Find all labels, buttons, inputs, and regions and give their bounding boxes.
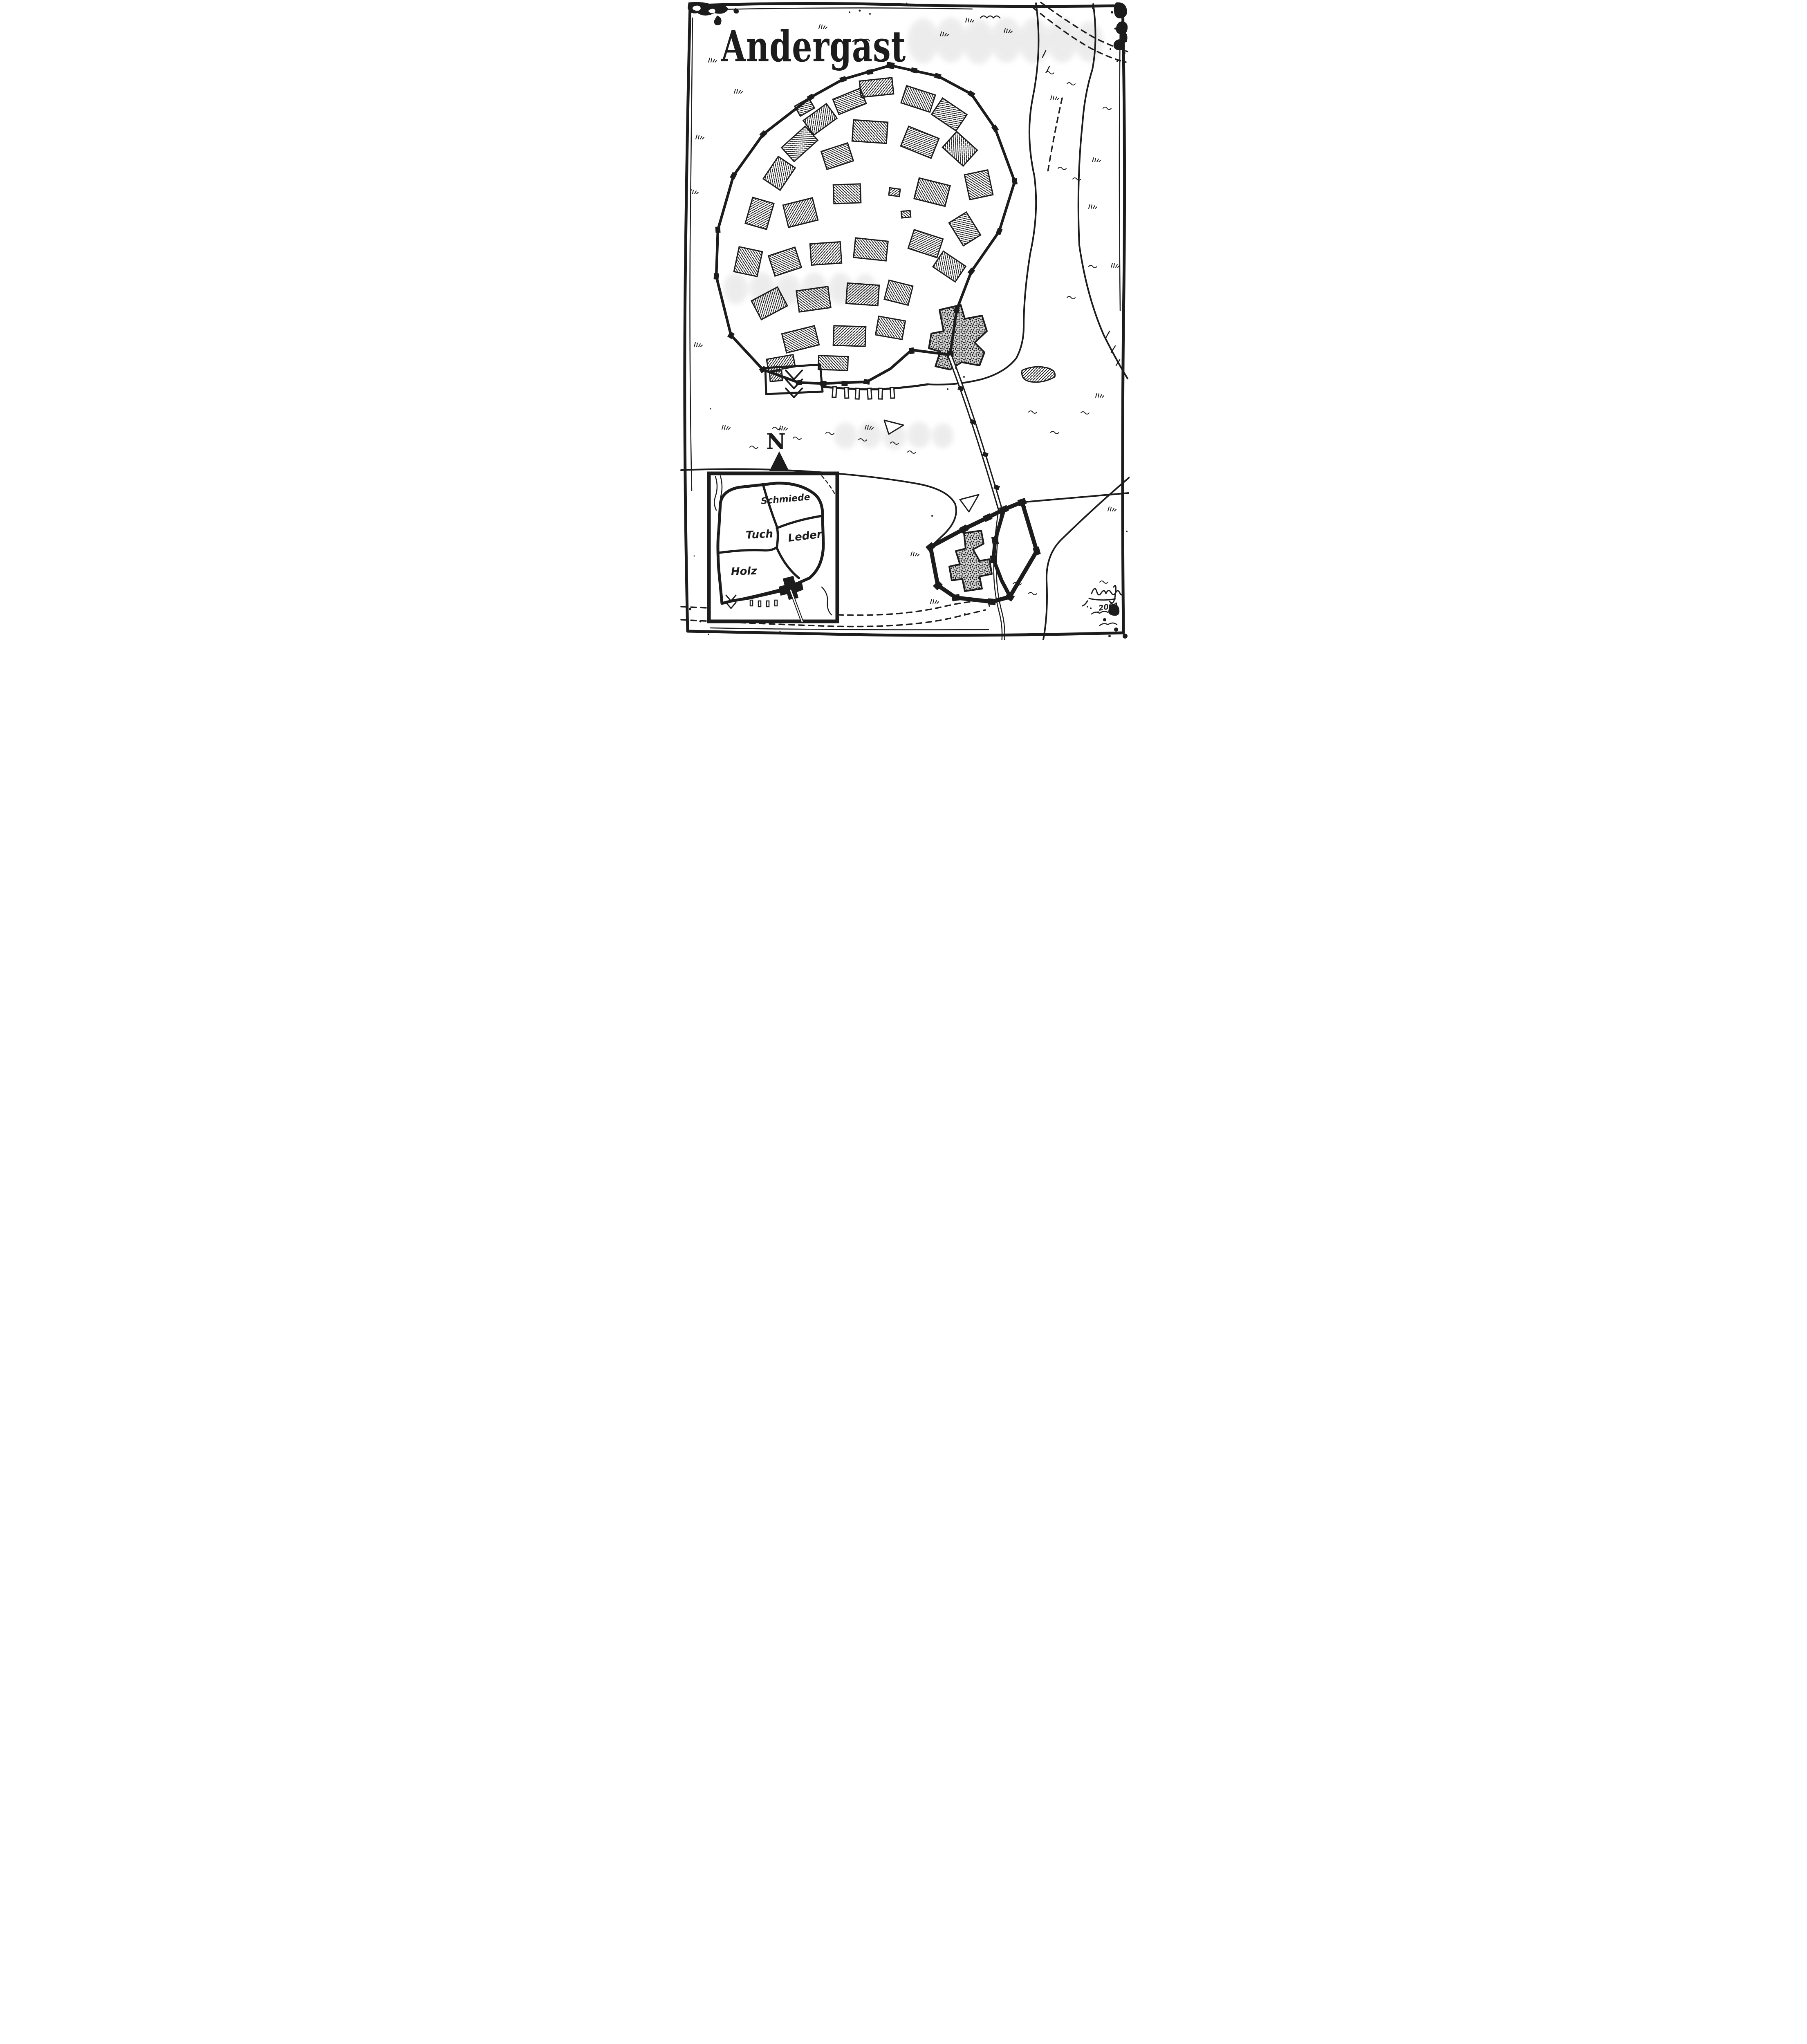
compass-north-label: N (766, 429, 786, 454)
map-drawing (681, 2, 1129, 639)
district-label-tuch: Tuch (745, 528, 773, 541)
scanned-map-page: Andergast N Schmiede Tuch Leder Holz 200… (678, 0, 1130, 640)
map-title: Andergast (721, 21, 906, 72)
town-map-canvas: Andergast N Schmiede Tuch Leder Holz 200… (678, 0, 1130, 640)
district-label-holz: Holz (731, 565, 758, 578)
